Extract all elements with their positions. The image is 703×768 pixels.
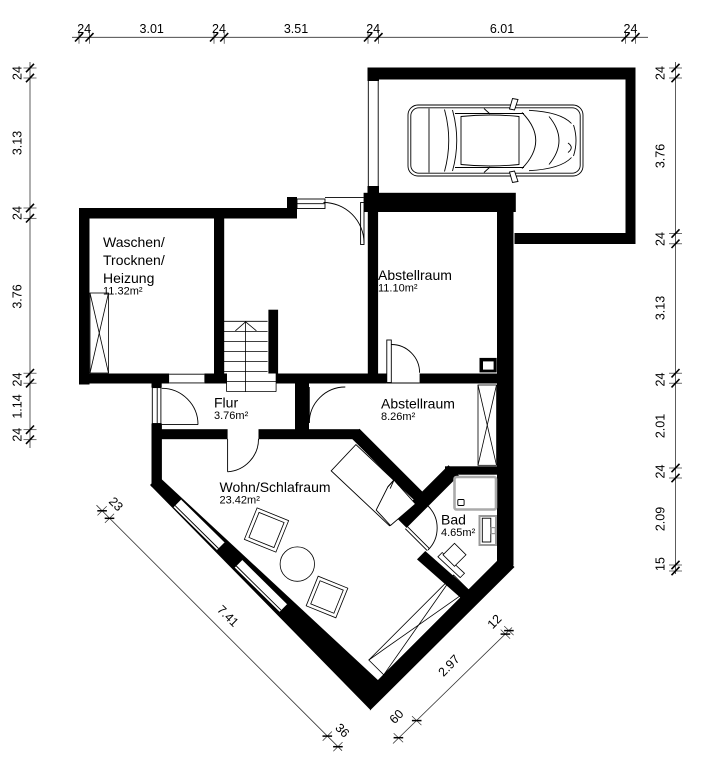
svg-text:24: 24 [654,66,668,80]
svg-text:11.10m²: 11.10m² [378,282,418,294]
svg-text:2.01: 2.01 [654,414,668,438]
svg-text:Abstellraum: Abstellraum [381,396,455,412]
svg-text:2.09: 2.09 [654,507,668,531]
svg-text:Bad: Bad [441,512,466,528]
svg-text:3.13: 3.13 [654,296,668,320]
svg-text:24: 24 [624,22,638,36]
svg-text:Wohn/Schlafraum: Wohn/Schlafraum [220,479,331,495]
svg-text:24: 24 [11,373,25,387]
svg-text:24: 24 [366,22,380,36]
svg-text:6.01: 6.01 [490,22,514,36]
svg-text:24: 24 [11,66,25,80]
svg-text:3.13: 3.13 [11,131,25,155]
svg-text:Waschen/: Waschen/ [103,234,165,250]
svg-text:Trocknen/: Trocknen/ [103,252,165,268]
svg-text:24: 24 [11,206,25,220]
svg-text:Flur: Flur [214,395,238,411]
svg-text:Heizung: Heizung [103,270,154,286]
svg-text:23.42m²: 23.42m² [220,494,261,506]
svg-text:3.51: 3.51 [284,22,308,36]
svg-text:4.65m²: 4.65m² [441,527,476,539]
svg-text:Abstellraum: Abstellraum [378,267,452,283]
svg-text:3.76: 3.76 [11,284,25,308]
svg-text:24: 24 [654,232,668,246]
svg-text:15: 15 [654,557,668,571]
svg-text:24: 24 [11,428,25,442]
svg-text:3.76m²: 3.76m² [214,410,249,422]
svg-text:3.01: 3.01 [140,22,164,36]
svg-text:24: 24 [654,465,668,479]
svg-text:24: 24 [654,373,668,387]
svg-text:11.32m²: 11.32m² [103,285,143,297]
svg-text:24: 24 [212,22,226,36]
svg-text:3.76: 3.76 [654,144,668,168]
svg-text:1.14: 1.14 [11,394,25,418]
svg-text:24: 24 [77,22,91,36]
svg-text:8.26m²: 8.26m² [381,411,416,423]
